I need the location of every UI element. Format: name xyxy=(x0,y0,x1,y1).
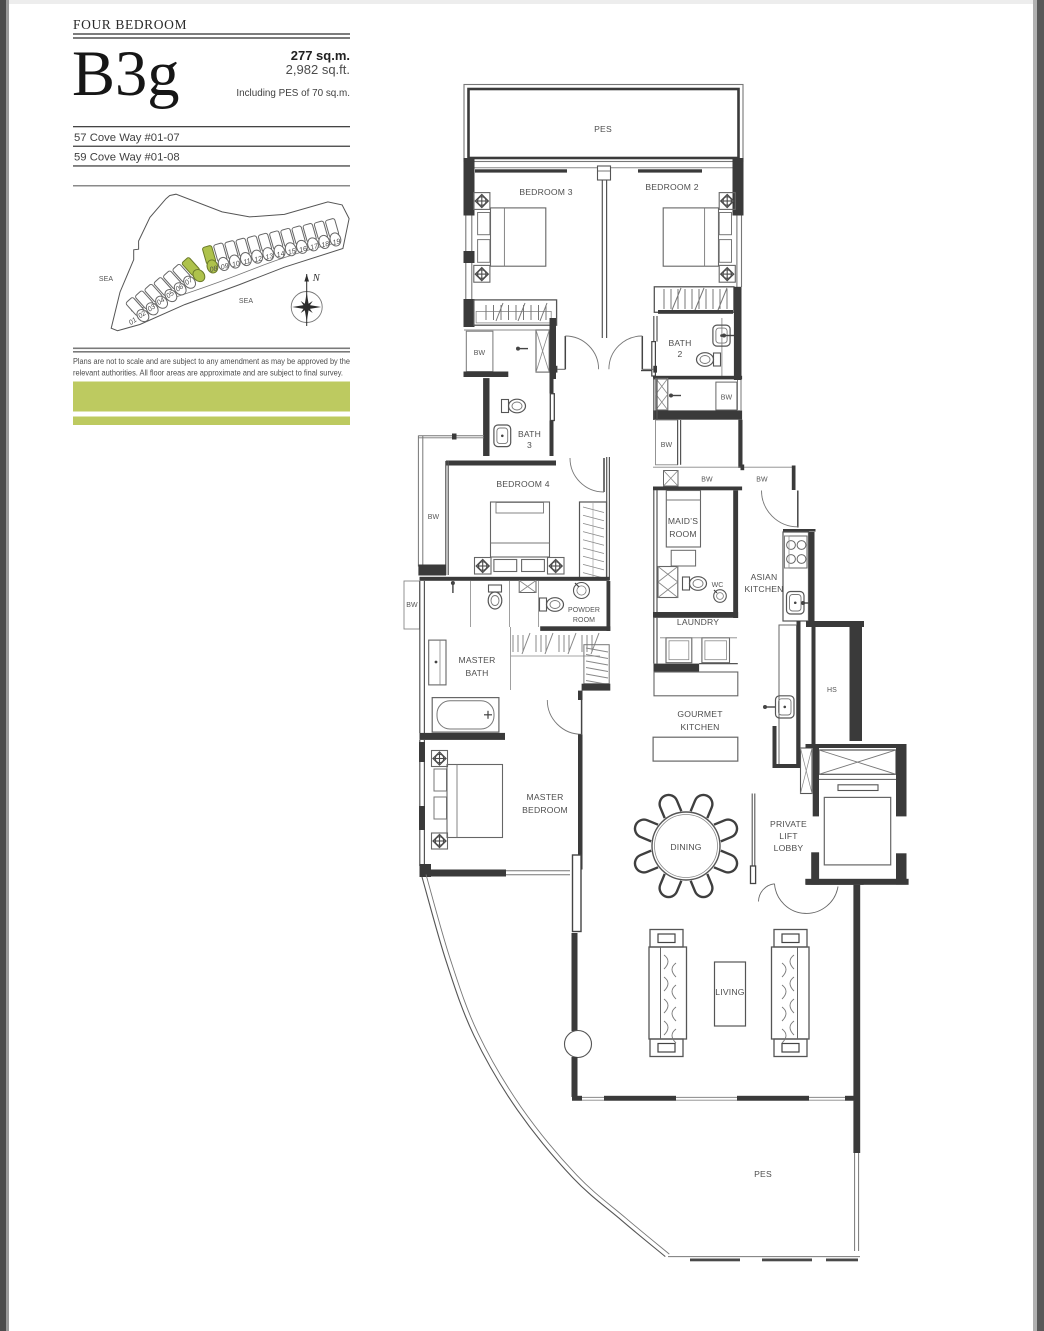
svg-text:LIFT: LIFT xyxy=(779,831,798,841)
svg-text:BEDROOM: BEDROOM xyxy=(522,805,568,815)
svg-text:BEDROOM 2: BEDROOM 2 xyxy=(645,182,698,192)
svg-text:ROOM: ROOM xyxy=(669,529,697,539)
svg-text:DINING: DINING xyxy=(670,842,701,852)
svg-text:PES: PES xyxy=(594,124,612,134)
svg-text:POWDER: POWDER xyxy=(568,607,600,614)
svg-text:PRIVATE: PRIVATE xyxy=(770,819,807,829)
svg-text:BW: BW xyxy=(428,514,440,521)
svg-text:277 sq.m.: 277 sq.m. xyxy=(291,48,350,63)
svg-text:PES: PES xyxy=(754,1169,772,1179)
svg-text:BW: BW xyxy=(721,395,733,402)
svg-text:ASIAN: ASIAN xyxy=(751,572,778,582)
svg-text:WC: WC xyxy=(712,582,724,589)
svg-text:2: 2 xyxy=(678,349,683,359)
svg-text:BATH: BATH xyxy=(668,338,691,348)
svg-text:SEA: SEA xyxy=(99,276,114,283)
svg-text:2,982 sq.ft.: 2,982 sq.ft. xyxy=(286,62,350,77)
svg-text:BW: BW xyxy=(406,602,418,609)
svg-text:59 Cove Way #01-08: 59 Cove Way #01-08 xyxy=(74,152,180,164)
svg-text:LIVING: LIVING xyxy=(715,987,744,997)
svg-text:MASTER: MASTER xyxy=(526,792,563,802)
svg-text:BW: BW xyxy=(474,350,486,357)
svg-text:HS: HS xyxy=(827,687,837,694)
svg-text:LOBBY: LOBBY xyxy=(774,843,804,853)
svg-text:Including PES of 70 sq.m.: Including PES of 70 sq.m. xyxy=(236,88,350,99)
svg-text:LAUNDRY: LAUNDRY xyxy=(677,617,719,627)
svg-text:57 Cove Way #01-07: 57 Cove Way #01-07 xyxy=(74,132,180,144)
svg-text:N: N xyxy=(312,273,321,284)
svg-text:ROOM: ROOM xyxy=(573,617,595,624)
svg-text:BW: BW xyxy=(661,442,673,449)
svg-text:3: 3 xyxy=(527,440,532,450)
svg-text:BEDROOM 4: BEDROOM 4 xyxy=(496,479,549,489)
svg-text:KITCHEN: KITCHEN xyxy=(680,722,719,732)
svg-text:BW: BW xyxy=(701,477,713,484)
svg-text:BEDROOM 3: BEDROOM 3 xyxy=(519,187,572,197)
svg-text:KITCHEN: KITCHEN xyxy=(744,584,783,594)
svg-text:BATH: BATH xyxy=(465,668,488,678)
svg-text:GOURMET: GOURMET xyxy=(677,709,723,719)
svg-text:BATH: BATH xyxy=(518,429,541,439)
svg-text:relevant authorities. All floo: relevant authorities. All floor areas ar… xyxy=(73,368,343,378)
svg-text:B3g: B3g xyxy=(72,38,180,109)
svg-text:FOUR BEDROOM: FOUR BEDROOM xyxy=(73,17,187,32)
svg-text:BW: BW xyxy=(756,477,768,484)
svg-text:SEA: SEA xyxy=(239,298,254,305)
svg-text:MAID’S: MAID’S xyxy=(668,516,698,526)
svg-text:MASTER: MASTER xyxy=(458,655,495,665)
svg-text:Plans are not to scale and are: Plans are not to scale and are subject t… xyxy=(73,356,350,366)
